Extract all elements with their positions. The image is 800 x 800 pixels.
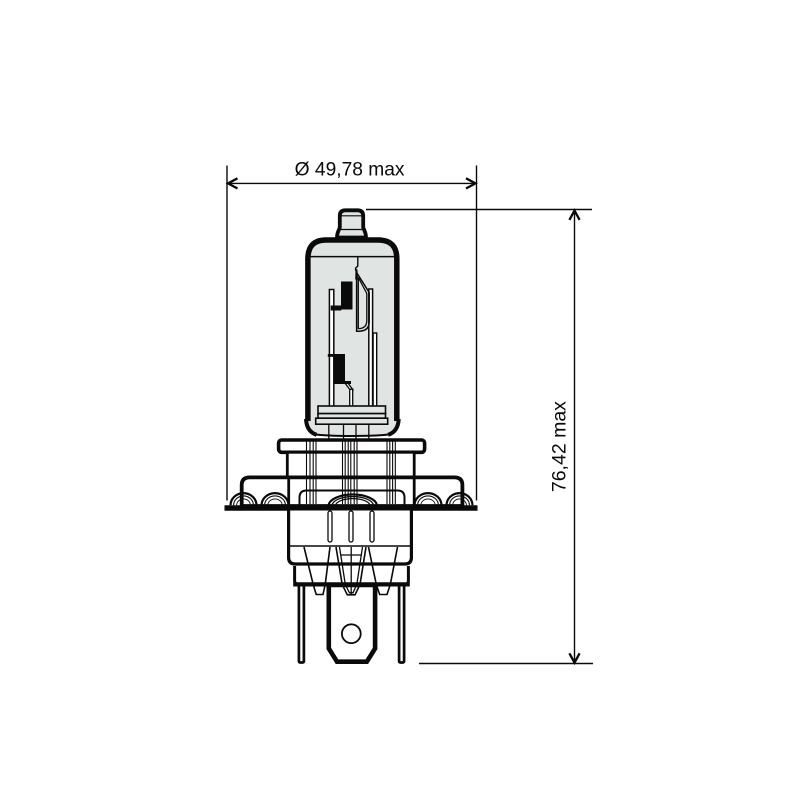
svg-text:Ø 49,78 max: Ø 49,78 max — [295, 159, 405, 180]
svg-text:76,42 max: 76,42 max — [549, 401, 571, 492]
